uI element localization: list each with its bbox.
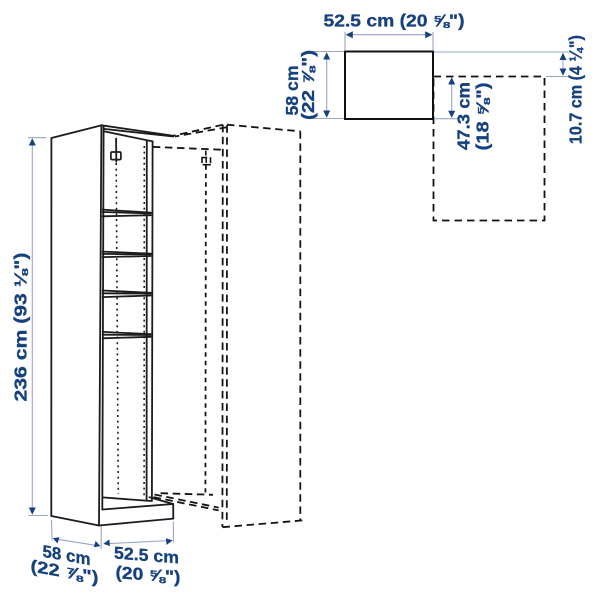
- svg-text:(22 ⅞"): (22 ⅞"): [298, 50, 318, 120]
- svg-text:236 cm (93 ⅛"): 236 cm (93 ⅛"): [11, 253, 31, 402]
- svg-text:47.3 cm: 47.3 cm: [454, 82, 474, 150]
- svg-text:10.7 cm (4 ¼"): 10.7 cm (4 ¼"): [566, 35, 586, 144]
- svg-text:52.5 cm (20 ⅝"): 52.5 cm (20 ⅝"): [324, 11, 465, 31]
- svg-text:(18 ⅝"): (18 ⅝"): [473, 83, 493, 151]
